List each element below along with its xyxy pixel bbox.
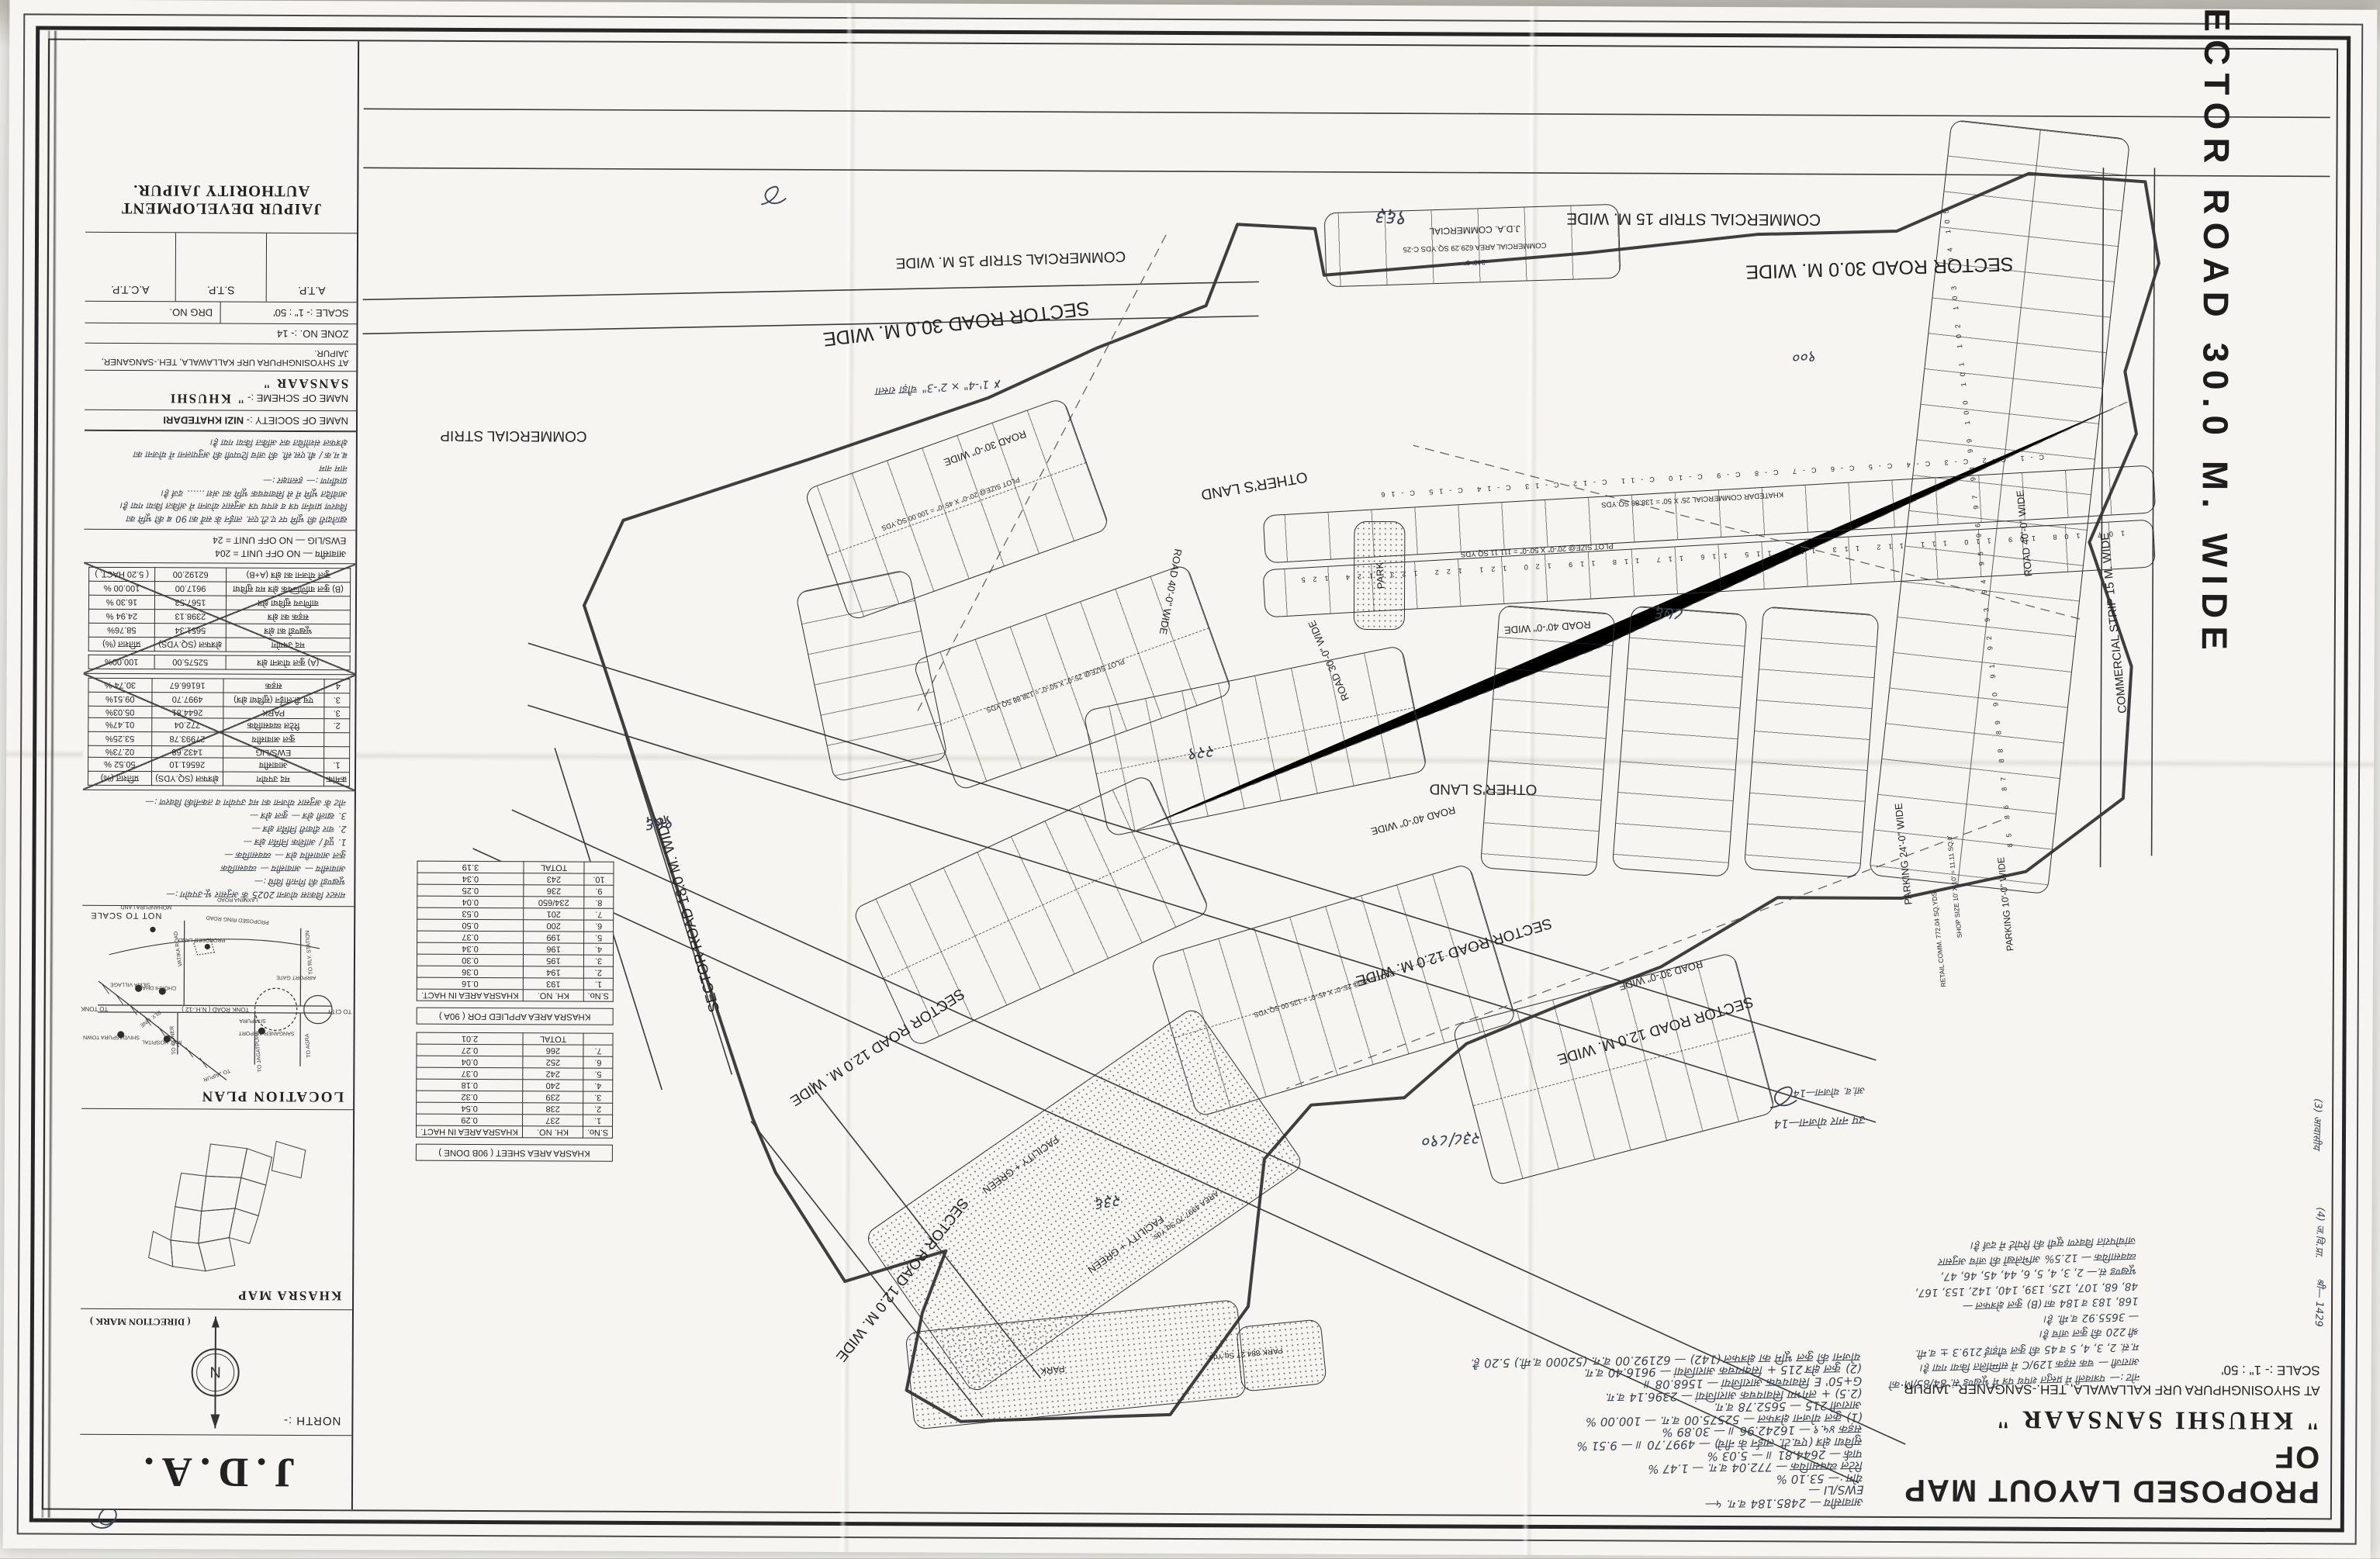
table-header-cell: क्षेत्रफल (SQ.YDS) (151, 772, 223, 786)
table-cell: 100.00% (88, 655, 154, 669)
text-line: मास्टर विकास योजना 2025 के अनुसार भू-उपय… (90, 887, 346, 901)
table-cell: कुल योजना का क्षेत्र (A+B) (227, 568, 351, 582)
table-cell: 4. (324, 679, 350, 693)
table-cell: 201 (524, 908, 584, 920)
sector-road-12m-label: SECTOR ROAD 12.0 M. WIDE (1555, 992, 1756, 1067)
table-cell: 1. (323, 759, 349, 773)
table-cell (584, 862, 614, 873)
table-header-cell: KH. NO. (522, 1126, 583, 1138)
table-cell (323, 733, 349, 747)
table-cell (323, 747, 349, 759)
table-cell: 50.52 % (88, 757, 152, 771)
location-plan-title: LOCATION PLAN (201, 1087, 344, 1104)
table-header-cell: क्रमांक (323, 773, 349, 786)
locplan-proposed-land: PROPOSED LAND (178, 937, 225, 942)
commercial-strip-label: COMMERCIAL STRIP 15 M. WIDE (2098, 532, 2129, 714)
table-cell: 9. (584, 885, 614, 897)
table-cell: कुल आवासीय (223, 732, 323, 747)
table-row: TOTAL2.01 (417, 1032, 613, 1045)
text-line: खातेदारी की भूमि पर ए.टी.एल. लाईन के सर्… (92, 512, 348, 526)
table-cell: 3.19 (417, 861, 524, 873)
society-value: NIZI KHATEDARI (163, 415, 244, 427)
table-cell: 243 (524, 873, 584, 885)
table-cell: TOTAL (524, 862, 584, 873)
text-line: EWS/LIG — NO OFF UNIT = 24 (93, 533, 346, 547)
table-row: 10.2430.34 (417, 873, 614, 885)
table-cell: 52575.00 (154, 655, 226, 669)
table-cell: 24.94 % (88, 609, 154, 623)
table-cell: PARK (223, 707, 324, 719)
road-label: ROAD 30'-0" WIDE (943, 428, 1028, 468)
table-cell: 0.36 (417, 966, 523, 978)
table-cell: 266 (523, 1045, 583, 1056)
handwritten-number: ९७६ (645, 810, 676, 838)
table-cell: 100.00 % (89, 581, 155, 595)
unit-count-lines: आवासीय — NO OFF UNIT = 204EWS/LIG — NO O… (84, 529, 355, 564)
locplan-to-agra: TO AGRA (305, 1033, 313, 1057)
text-line: भूखण्डों की गिनती विधि :— (90, 874, 346, 888)
table-cell: EWS/LIG (223, 746, 323, 759)
table-header-cell: प्रतिशत (%) (88, 637, 154, 651)
table-cell: 772.04 (151, 718, 223, 732)
area-summary-table-crossed: (A) कुल योजना क्षेत्र52575.00100.00% मद … (84, 562, 356, 675)
plot-size-label: PLOT SIZE@ 20'-0" X 45'-0" = 100.00 SQ.Y… (880, 475, 1021, 532)
table-cell: सड़क (223, 679, 324, 693)
drawing-sheet: SECTOR ROAD 30.0 M. WIDECOMMERCIAL STRIP… (3, 0, 2378, 1559)
sector-road-12m-label: SECTOR ROAD 12.0 M. WIDE (832, 1194, 971, 1364)
table-cell: 2. (323, 719, 349, 733)
table-cell: 0.25 (417, 884, 524, 897)
locplan-to-rly-station: TO RLY. STATION (305, 930, 314, 974)
park-label: PARK (1040, 1364, 1065, 1377)
scale-drg-row: SCALE :- 1" : 50' DRG NO. (85, 302, 357, 325)
title-block-panel: J.D.A. NORTH :- N ( DIRECTION MARK ) KHA… (80, 40, 359, 1510)
scheme-location-row: AT SHYOSINGHPURA URF KALLAWALA, TEH.-SAN… (85, 344, 356, 372)
table-cell: 0.18 (417, 1079, 523, 1091)
sector-road-30m-label: SECTOR ROAD 30.0 M. WIDE (822, 296, 1090, 350)
table-cell: 234/650 (524, 897, 584, 908)
table-header-cell: S.No. (583, 990, 613, 1001)
locplan-ring-road: PROPOSED RING ROAD (206, 914, 269, 925)
table-cell: 4. (583, 1080, 613, 1091)
area-table-b: क्रमांकमद उपयोगक्षेत्रफल (SQ.YDS)प्रतिशत… (88, 678, 351, 786)
table-row: 7.2010.53 (417, 907, 614, 920)
handwritten-number: २३६ (1094, 1189, 1124, 1216)
parking-label: PARKING 10'-0" WIDE (1995, 856, 2015, 951)
location-plan-section: LOCATION PLAN (81, 905, 354, 1110)
table-row: 1.1930.16 (417, 977, 613, 990)
drg-no-cell: DRG NO. (85, 302, 222, 323)
handwritten-margin-note: (4) ज.वि.प्रा. (2313, 1207, 2329, 1259)
table-row: 6.2520.04 (417, 1056, 613, 1068)
parking-label: PARKING 24'-0" WIDE (1893, 803, 1915, 906)
table-cell: 2398.13 (154, 610, 226, 624)
table-cell: 6. (584, 920, 614, 932)
table-cell: 1. (583, 1115, 613, 1126)
table-header-cell: क्षेत्रफल (SQ.YDS) (154, 638, 226, 652)
table-row: 4.1960.34 (417, 942, 614, 955)
table-header-cell: KHASRA AREA IN HACT. (417, 989, 523, 1001)
title-location: AT SHYOSINGHPURA URF KALLAWALA, TEH.-SAN… (1886, 1381, 2320, 1398)
table-cell: 62192.00 (155, 568, 227, 582)
table-cell: 0.32 (417, 1091, 523, 1103)
table-cell: 195 (523, 955, 583, 966)
road-label: ROAD 40'-0" WIDE (1504, 619, 1592, 636)
table-cell: 4. (584, 943, 614, 955)
table-cell: 8. (584, 897, 614, 908)
text-line: कुल आवासीय क्षेत्र — व्यवसायिक — (91, 848, 347, 862)
table-cell: 199 (524, 932, 584, 943)
locplan-airport-gate: AIRPORT GATE (276, 974, 316, 980)
road-label: ROAD 40'-0" WIDE (1157, 548, 1185, 636)
table-row: 3.2390.32 (417, 1091, 613, 1103)
table-cell: 0.16 (417, 977, 523, 990)
society-row: NAME OF SOCIETY :- NIZI KHATEDARI (85, 410, 356, 432)
table-row: 4.2400.18 (417, 1079, 613, 1091)
table-header-cell: KHASRA AREA IN HACT. (416, 1125, 522, 1138)
table-cell: वाणिज्य सुविधा क्षेत्र (226, 596, 350, 610)
table-row: 2.2380.54 (417, 1102, 613, 1115)
table-cell: 3. (583, 955, 613, 966)
table-row: कुल आवासीय27993.7853.25% (88, 731, 350, 746)
table-cell: 0.27 (417, 1044, 523, 1056)
table-cell: 242 (523, 1068, 583, 1080)
table-cell: (A) कुल योजना क्षेत्र (226, 655, 350, 670)
text-line: आवेदित भूमि में से सिवायचक भूमि का अंश …… (92, 486, 348, 500)
khasra-map-sketch (79, 1111, 353, 1288)
khasra-table-caption: KHASRA AREA SHEET ( 90B DONE ) (416, 1144, 613, 1162)
location-plan-sketch: TO CITYTO AGRATO RLY. STATIONAIRPORT GAT… (80, 910, 354, 1087)
road-label: ROAD 30'-0" WIDE (1306, 619, 1351, 703)
locplan-to-jaipur: TO JAIPUR (202, 1067, 231, 1082)
signature-cell-stp: S.T.P. (176, 233, 267, 302)
table-row: EWS/LIG1432.6802.73% (88, 745, 350, 758)
handwritten-margin-note: श्री— 1429 (2313, 1278, 2328, 1327)
table-cell: आवासीय (223, 758, 323, 773)
table-cell: 6. (583, 1056, 613, 1068)
table-cell: 240 (523, 1080, 583, 1091)
table-cell: 252 (523, 1056, 583, 1068)
table-cell: 200 (524, 920, 584, 932)
table-row: 3.एच.टी.लाईन (सुविधा क्षेत्र)4997.7009.5… (88, 692, 350, 707)
table-cell: 194 (523, 966, 583, 978)
title-scale: SCALE :- 1" : 50' (1886, 1360, 2320, 1378)
table-cell: 4997.70 (152, 693, 223, 707)
locplan-shivdaspura: SHIVDASPURA TOWN (83, 1034, 140, 1039)
table-row: 2.रिटेल व्यवसायिक772.0401.47% (88, 717, 350, 732)
direction-mark-label: ( DIRECTION MARK ) (90, 1315, 191, 1328)
table-cell: 7. (583, 1045, 613, 1056)
table-cell: 27993.78 (151, 732, 223, 746)
area-table-a: मद उपयोगक्षेत्रफल (SQ.YDS)प्रतिशत (%)भूख… (88, 567, 351, 652)
table-cell: 239 (523, 1091, 583, 1103)
locplan-to-jagatpura: TO JAGATPURA (254, 1031, 263, 1072)
table-cell: 0.29 (417, 1114, 523, 1126)
text-line: ब.म.क / बी.एस.सी. की जांच टिप्पणी की अनु… (92, 448, 348, 462)
not-to-scale-label: NOT TO SCALE (90, 911, 161, 920)
facility-green-label: FACILITY + GREEN (1085, 1213, 1166, 1276)
location-plan-labels: TO CITYTO AGRATO RLY. STATIONAIRPORT GAT… (80, 910, 354, 1087)
table-cell (583, 1033, 613, 1045)
text-line: नोट के अनुसार योजना का मद उपयोग व तकनीकी… (91, 795, 347, 809)
handwritten-number: ८७६ (1655, 600, 1685, 627)
scheme-label: NAME OF SCHEME :- (247, 392, 348, 405)
table-cell: 10. (584, 873, 614, 885)
scan-background: SECTOR ROAD 30.0 M. WIDECOMMERCIAL STRIP… (0, 0, 2380, 1558)
table-row: 1.2370.29 (417, 1114, 613, 1126)
table-cell: रिटेल व्यवसायिक (223, 718, 323, 733)
table-cell: 09.51% (88, 692, 152, 706)
table-row: 3.PARK2644.8105.03% (88, 706, 350, 718)
table-cell: (B) कुल वाणिज्यिक क्षेत्र मय सुविधा (227, 582, 351, 596)
handwritten-number: २३८/८९० (1422, 1127, 1482, 1154)
table-header-cell: प्रतिशत (%) (88, 771, 151, 785)
shop-size-label: SHOP SIZE 10' X 10' = 11.11 SQ.Y (1946, 835, 1963, 939)
commercial-strip-label: COMMERCIAL STRIP 15 M. WIDE (895, 247, 1126, 271)
table-cell: 3. (583, 1091, 613, 1103)
zone-row: ZONE NO. :- 14 (85, 323, 356, 345)
table-cell: एच.टी.लाईन (सुविधा क्षेत्र) (223, 693, 324, 707)
table-header-cell: मद उपयोग (223, 772, 323, 786)
signature-row: A.T.P. S.T.P. A.C.T.P. (85, 233, 357, 303)
locplan-sitapura: SITAPURA (239, 1018, 266, 1023)
table-cell: 0.34 (417, 942, 524, 955)
table-row: 8.234/6500.04 (417, 896, 614, 908)
table-header-cell: KH. NO. (523, 990, 583, 1001)
handwritten-note: आं.व. योजना—14 (1793, 1084, 1866, 1101)
table-cell: 0.54 (417, 1102, 523, 1115)
plot-numbers: 107 108 109 110 111 112 113 114 115 116 … (1293, 530, 2125, 585)
text-line: क्षेत्रफल संशोधित कर अंकित किया गया है। (92, 435, 348, 449)
table-cell: 53.25% (88, 731, 152, 745)
locplan-to-tonk: TO TONK (81, 1005, 108, 1012)
table-cell: 30.74 % (88, 678, 152, 692)
table-cell: TOTAL (523, 1033, 583, 1045)
table-cell: 0.34 (417, 873, 524, 885)
handwritten-margin-note: (3) आवासीय (2310, 1098, 2326, 1150)
others-land-label: OTHER'S LAND (1430, 779, 1538, 797)
khasra-map-section: KHASRA MAP (81, 1108, 353, 1310)
table-cell: 0.50 (417, 919, 524, 932)
table-cell: 3. (324, 693, 350, 707)
text-line: विवरण प्रार्थना पत्र व शपथ पत्र अनुसार य… (92, 500, 348, 513)
table-row: (A) कुल योजना क्षेत्र52575.00100.00% (88, 655, 350, 669)
table-cell: 2. (583, 1103, 613, 1115)
handwritten-number: २२९ (1188, 740, 1217, 766)
north-label: NORTH :- (283, 1414, 341, 1427)
sector-road-30m-label: SECTOR ROAD 30.0 M. WIDE (2194, 0, 2239, 658)
text-line: आवासीय — आवासीय — व्यवसायिक (90, 861, 346, 875)
area-statement-table-crossed: क्रमांकमद उपयोगक्षेत्रफल (SQ.YDS)प्रतिशत… (83, 673, 355, 791)
others-land-label: OTHER'S LAND (1199, 468, 1308, 503)
khasra-tables: KHASRA AREA SHEET ( 90B DONE ) S.No.KH. … (416, 861, 614, 1170)
handwritten-number: ९६३ (1376, 204, 1410, 234)
table-header-cell: S.No. (583, 1126, 612, 1138)
authority-title: JAIPUR DEVELOPMENT AUTHORITY JAIPUR. (85, 165, 357, 234)
table-cell: 7. (584, 908, 614, 920)
table-cell: 9617.00 (155, 582, 227, 596)
road-label: ROAD 40'-0" WIDE (1370, 804, 1457, 838)
title-line: PROPOSED LAYOUT MAP OF (1885, 1437, 2319, 1509)
khasra-table-caption: KHASRA AREA APPLIED FOR ( 90A ) (417, 1008, 614, 1025)
table-cell: 2. (583, 966, 613, 978)
table-cell: 236 (524, 885, 584, 897)
table-cell: 26561.10 (151, 758, 223, 772)
table-cell: 05.03% (88, 706, 152, 717)
text-line: नाम नाम (92, 461, 348, 475)
commercial-plot-numbers: C-1 C-2 C-3 C-4 C-5 C-6 C-7 C-8 C-9 C-10… (1375, 453, 2044, 499)
locplan-sanganer-airport: SANGANER AIRPORT (239, 1030, 295, 1035)
handwritten-note: उप नगर योजना—14 (1773, 1112, 1866, 1132)
table-cell: 193 (523, 978, 583, 990)
table-row: सड़क का क्षेत्र2398.1324.94 % (88, 609, 350, 624)
locplan-silwa-village: SILWA VILLAGE (110, 981, 150, 987)
road-label: ROAD 30'-0" WIDE (1617, 958, 1704, 993)
table-cell: 16.30 % (88, 595, 154, 609)
hindi-notes-section: मास्टर विकास योजना 2025 के अनुसार भू-उपय… (82, 790, 355, 907)
table-cell: ( 5.20 HACT. ) (89, 567, 155, 581)
handwritten-note: ✗ 1'-4" × 2'-3" चौड़ा रास्ता (876, 376, 1002, 399)
jda-logo: J.D.A. (80, 1434, 351, 1510)
table-cell: 0.30 (417, 954, 523, 966)
text-line: 2. चार दीवारी निर्मित क्षेत्र — (91, 821, 347, 835)
khasra-map-title: KHASRA MAP (237, 1288, 341, 1304)
hindi-paragraph: खातेदारी की भूमि पर ए.टी.एल. लाईन के सर्… (84, 430, 356, 530)
locplan-tonk-road: TONK ROAD ( N.H.-12 ) (182, 1006, 249, 1013)
table-row: 1.आवासीय26561.1050.52 % (88, 757, 350, 772)
table-cell: 0.37 (417, 931, 524, 943)
table-cell: 58.76% (88, 623, 154, 637)
sector-road-30m-label: SECTOR ROAD 30.0 M. WIDE (1745, 252, 2014, 283)
table-row: 3.1950.30 (417, 954, 613, 966)
dimension-label: 240'-6" (1464, 258, 1486, 267)
signature-cell-actp: A.C.T.P. (85, 233, 176, 302)
table-row: (B) कुल वाणिज्यिक क्षेत्र मय सुविधा9617.… (89, 581, 351, 596)
table-cell: 01.47% (88, 717, 152, 731)
scale-cell: SCALE :- 1" : 50' (221, 302, 357, 324)
north-section: NORTH :- N ( DIRECTION MARK ) (80, 1308, 352, 1436)
commercial-area-label: COMMERCIAL AREA 629.29 SQ.YDS C-25 (1403, 240, 1546, 254)
table-cell: 1. (583, 978, 613, 990)
scheme-row: NAME OF SCHEME :- " KHUSHI SANSAAR " (85, 371, 356, 412)
table-cell: 3. (324, 707, 350, 719)
table-header-cell: मद उपयोग (226, 638, 350, 652)
plot-size-label: PLOT SIZE@ 25'-0" X 45'-0" = 125.00 SQ.Y… (1253, 970, 1396, 1019)
locplan-to-city: TO CITY (327, 1008, 351, 1015)
table-row: 4.सड़क16166.6730.74 % (88, 678, 350, 693)
table-row: वाणिज्य सुविधा क्षेत्र1567.5316.30 % (88, 595, 350, 610)
table-row: TOTAL3.19 (417, 861, 614, 873)
commercial-strip-label: COMMERCIAL STRIP 15 M. WIDE (1566, 209, 1821, 228)
table-cell: 0.37 (417, 1067, 523, 1080)
jda-commercial-label: J.D.A. COMMERCIAL (1429, 223, 1520, 237)
table-cell: 1567.53 (154, 596, 226, 610)
table-cell: 2644.81 (152, 707, 223, 718)
facility-green-label: FACILITY + GREEN (981, 1134, 1061, 1197)
sector-road-18m-label: SECTOR ROAD 18.0 M. WIDE (652, 814, 724, 1015)
table-cell: भूखण्डों का क्षेत्र (226, 624, 350, 638)
table-cell: 237 (523, 1115, 583, 1126)
plot-size-label: PLOT SIZE@ 20'-0" X 50'-0" = 111.11 SQ.Y… (1461, 541, 1614, 558)
table-cell: 0.04 (417, 896, 524, 908)
text-line: 3. खाली क्षेत्र — कुल क्षेत्र — (91, 808, 347, 822)
table-row: 6.2000.50 (417, 919, 614, 932)
text-line: प्रार्थीगण :— हस्ताक्षर :— (92, 474, 348, 488)
plot-size-label: KHATEDAR COMMERCIAL 25' X 50' = 138.88 S… (1601, 490, 1783, 509)
society-label: NAME OF SOCIETY :- (247, 415, 348, 427)
sector-road-12m-label: SECTOR ROAD 12.0 M. WIDE (787, 984, 967, 1109)
signature-cell-atp: A.T.P. (267, 233, 357, 302)
text-line: आवासीय — NO OFF UNIT = 204 (93, 546, 346, 560)
commercial-strip-label: COMMERCIAL STRIP (440, 427, 586, 444)
main-title-block: PROPOSED LAYOUT MAP OF " KHUSHI SANSAAR … (1885, 1360, 2320, 1509)
plot-numbers: 85 86 87 88 89 90 91 92 93 94 95 96 97 9… (1942, 203, 2015, 848)
table-cell: 238 (523, 1103, 583, 1115)
table-row: 2.1940.36 (417, 966, 613, 978)
retail-comm-label: RETAIL COMM. 772.04 SQ.YDS (1930, 891, 1947, 987)
road-label: ROAD 40'-0" WIDE (2014, 489, 2034, 577)
table-cell: 5651.34 (154, 624, 226, 638)
area-table-a-total-row: (A) कुल योजना क्षेत्र52575.00100.00% (88, 655, 351, 670)
table-cell: 5. (583, 1068, 613, 1080)
text-line: 1. पूर्व / आंशिक निर्मित क्षेत्र — (91, 835, 347, 849)
handwritten-number: ९०० (1793, 347, 1818, 369)
table-cell: 196 (524, 943, 584, 955)
table-cell: 5. (584, 932, 614, 943)
table-row: कुल योजना का क्षेत्र (A+B)62192.00( 5.20… (89, 567, 351, 582)
table-cell: 16166.67 (152, 679, 223, 693)
locplan-rly-line: RLY. LINE (139, 1009, 162, 1028)
khasra-table-90b: S.No.KH. NO.KHASRA AREA IN HACT.1.2370.2… (416, 1032, 614, 1139)
table-cell: 0.04 (417, 1056, 523, 1068)
table-cell: सड़क का क्षेत्र (226, 610, 350, 624)
plot-size-label: PLOT SIZE@ 25'-0" X 50'-0" = 138.88 SQ.Y… (985, 658, 1126, 714)
khasra-table-90a: S.No.KH. NO.KHASRA AREA IN HACT.1.1930.1… (417, 861, 614, 1002)
table-cell: 02.73% (88, 745, 152, 757)
table-row: 5.2420.37 (417, 1067, 613, 1080)
table-row: भूखण्डों का क्षेत्र5651.3458.76% (88, 623, 350, 638)
table-row: 9.2360.25 (417, 884, 614, 897)
table-cell: 1432.68 (151, 746, 223, 758)
svg-text:N: N (209, 1363, 221, 1380)
scheme-name: " KHUSHI SANSAAR " (1885, 1404, 2319, 1434)
table-cell: 2.01 (417, 1032, 523, 1045)
locplan-mg-hospital: M.G. HOSPITAL (142, 1039, 182, 1045)
park-label: PARK 884.27 Sq.Yds. (1207, 1346, 1283, 1362)
table-row: 7.2660.27 (417, 1044, 613, 1056)
table-cell: 0.53 (417, 907, 524, 920)
table-row: 5.1990.37 (417, 931, 614, 943)
